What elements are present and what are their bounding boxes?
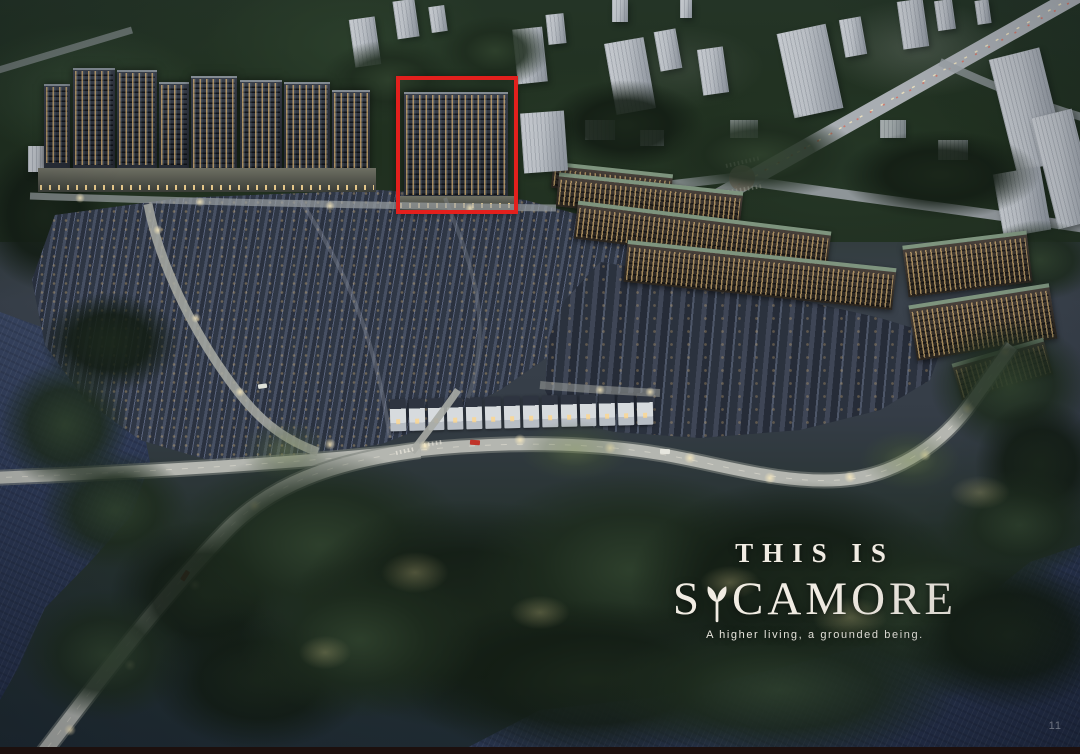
lit-clearing — [290, 630, 360, 675]
aerial-render-scene: THIS IS S CAMORE A higher living, a grou… — [0, 0, 1080, 754]
brand-prefix: S — [673, 576, 703, 623]
page-number: 11 — [1049, 720, 1062, 732]
brand-tagline: A higher living, a grounded being. — [620, 629, 1010, 641]
highlight-rectangle — [396, 76, 518, 214]
hero-text-block: THIS IS S CAMORE A higher living, a grou… — [620, 538, 1010, 641]
brand-suffix: CAMORE — [732, 576, 957, 623]
lit-clearing — [500, 590, 580, 635]
lit-clearing — [370, 545, 460, 600]
lit-clearing — [940, 470, 1020, 515]
brand-tree-icon — [704, 584, 730, 624]
brand-wordmark: S CAMORE — [620, 576, 1010, 623]
lit-tree-canopy — [520, 420, 630, 480]
lit-tree-canopy — [240, 420, 330, 480]
hero-heading: THIS IS — [620, 538, 1010, 569]
bottom-bar — [0, 747, 1080, 754]
